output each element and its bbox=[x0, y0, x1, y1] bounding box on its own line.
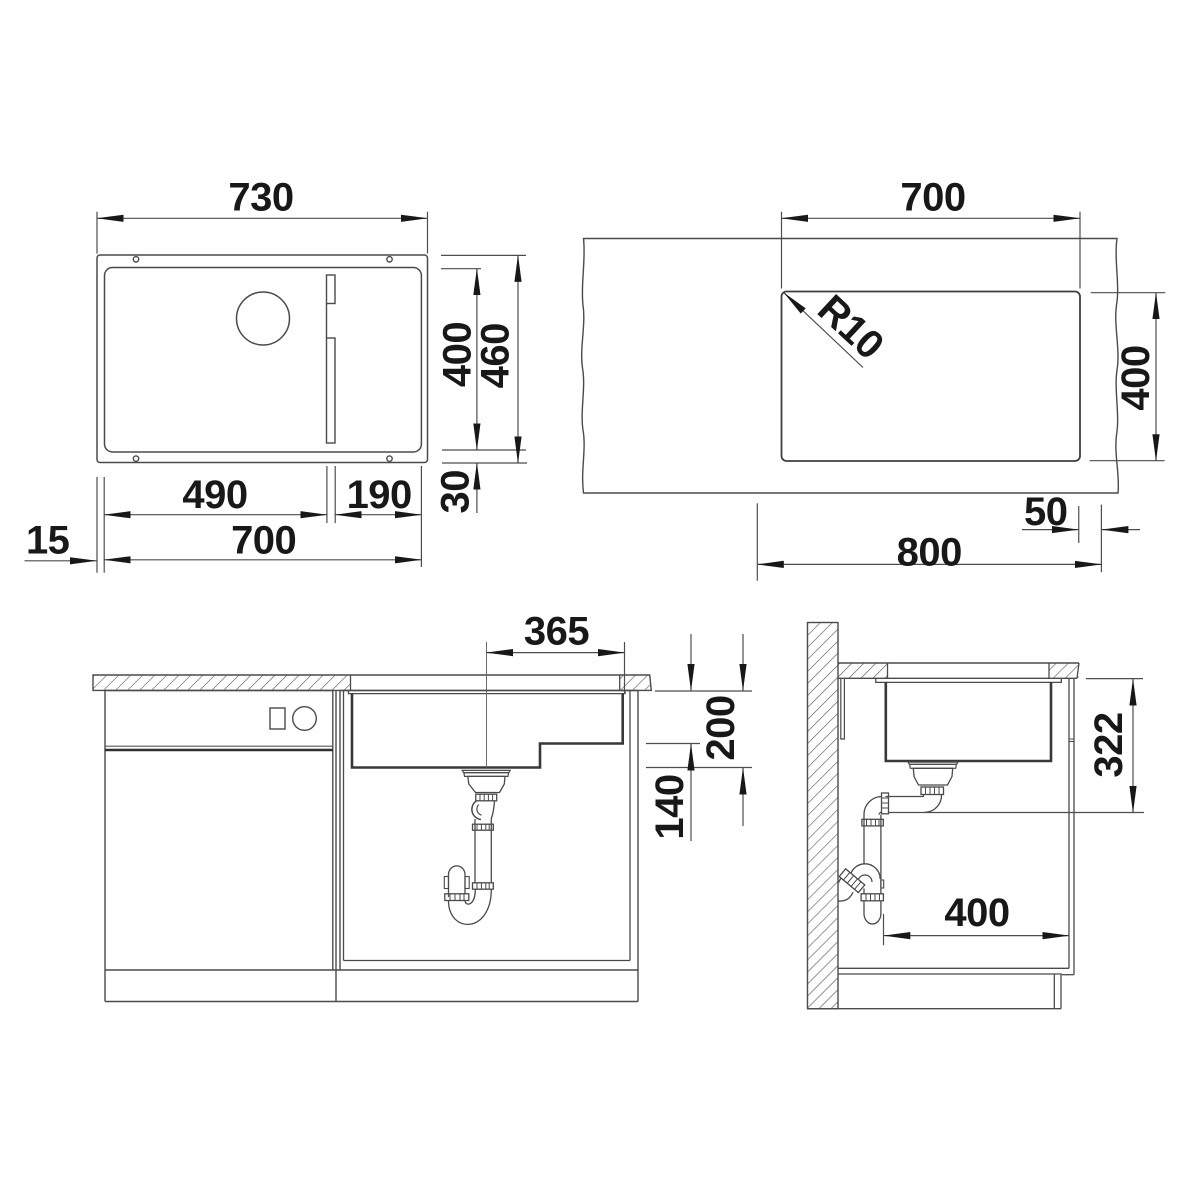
svg-text:R10: R10 bbox=[809, 287, 892, 368]
svg-text:730: 730 bbox=[228, 176, 293, 220]
svg-text:200: 200 bbox=[699, 695, 743, 760]
svg-text:15: 15 bbox=[26, 519, 70, 563]
svg-text:140: 140 bbox=[648, 774, 692, 839]
svg-text:800: 800 bbox=[897, 531, 962, 575]
svg-text:490: 490 bbox=[182, 473, 247, 517]
svg-text:460: 460 bbox=[474, 323, 518, 388]
svg-text:365: 365 bbox=[524, 610, 589, 654]
svg-text:400: 400 bbox=[944, 891, 1009, 935]
svg-text:700: 700 bbox=[231, 519, 296, 563]
svg-text:700: 700 bbox=[900, 176, 965, 220]
svg-text:322: 322 bbox=[1087, 712, 1131, 777]
svg-text:190: 190 bbox=[347, 473, 412, 517]
svg-text:400: 400 bbox=[1114, 345, 1158, 410]
svg-text:30: 30 bbox=[433, 470, 477, 514]
svg-text:50: 50 bbox=[1024, 490, 1068, 534]
